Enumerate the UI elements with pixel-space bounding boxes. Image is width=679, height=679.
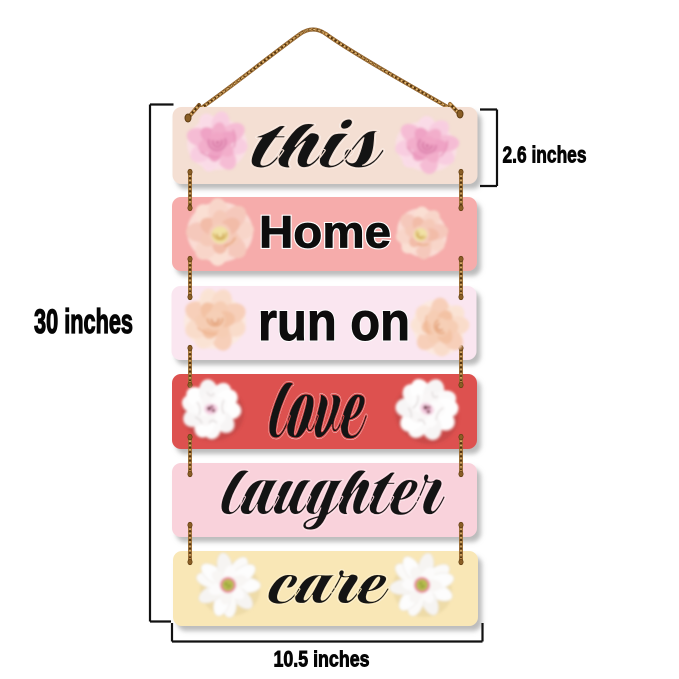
- svg-text:Home: Home: [259, 207, 391, 258]
- svg-text:run on: run on: [258, 292, 410, 352]
- svg-text:2.6 inches: 2.6 inches: [503, 142, 587, 168]
- svg-text:10.5 inches: 10.5 inches: [274, 647, 370, 672]
- svg-text:30 inches: 30 inches: [34, 303, 133, 341]
